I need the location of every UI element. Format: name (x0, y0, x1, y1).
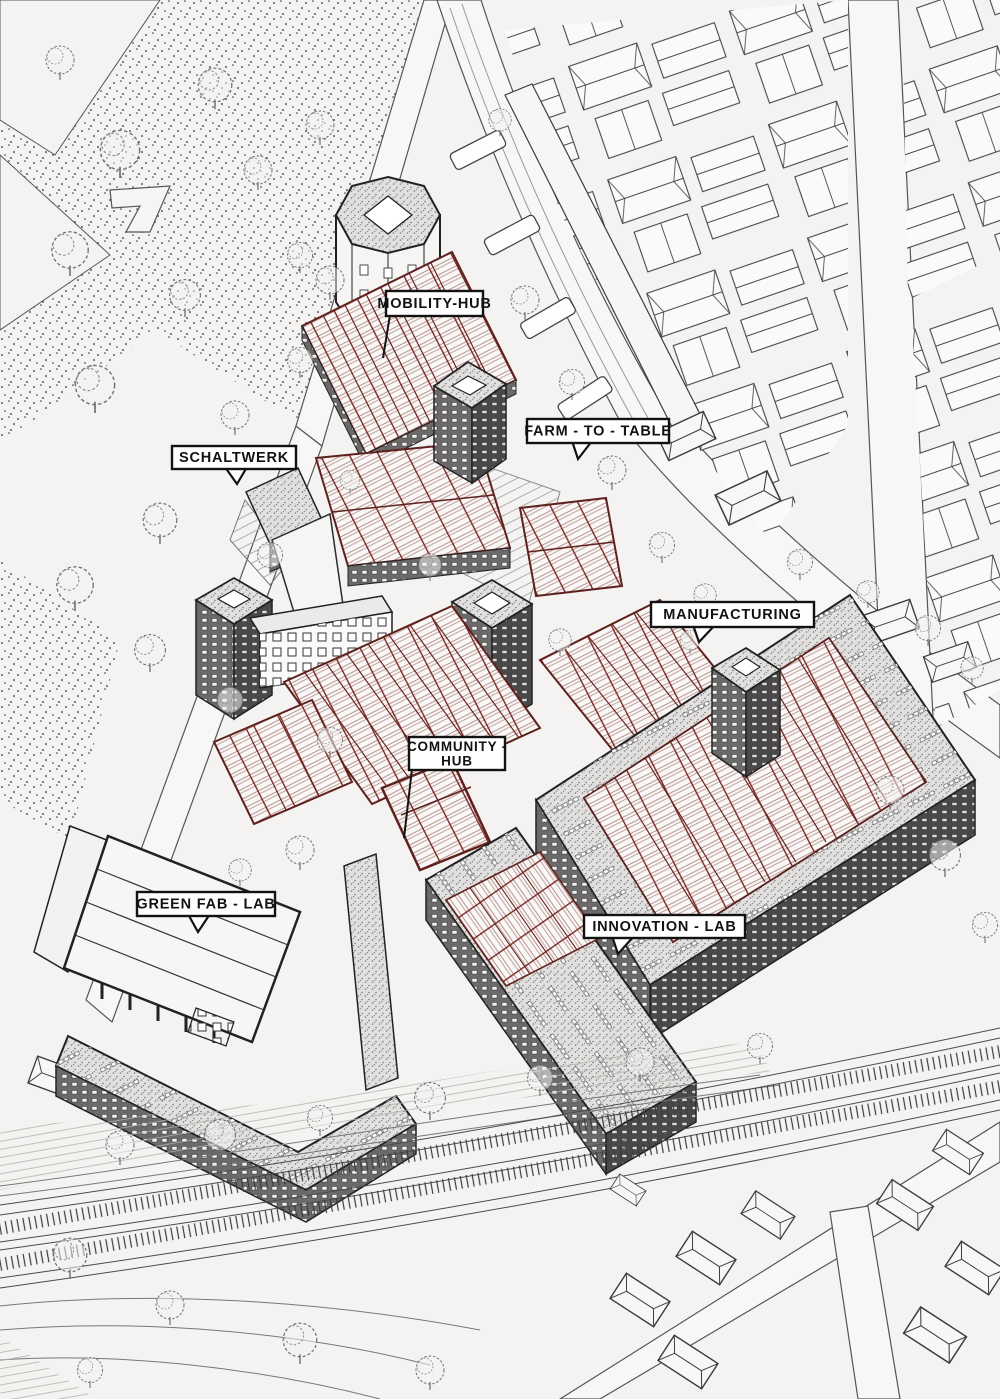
road-bottom-branch (830, 1206, 900, 1399)
masterplan-page: MOBILITY-HUB FARM - TO - TABLE SCHALTWER… (0, 0, 1000, 1399)
label-text-community-hub-line2: HUB (441, 754, 473, 769)
masterplan-drawing: MOBILITY-HUB FARM - TO - TABLE SCHALTWER… (0, 0, 1000, 1399)
label-text-green-fab-lab: GREEN FAB - LAB (136, 897, 275, 913)
label-text-mobility-hub: MOBILITY-HUB (377, 296, 491, 312)
building-green-fab-lab (34, 826, 300, 1046)
label-text-community-hub-line1: COMMUNITY - (407, 739, 507, 754)
label-text-schaltwerk: SCHALTWERK (179, 450, 289, 466)
label-text-farm-to-table: FARM - TO - TABLE (524, 424, 672, 440)
building-red-shed-small (520, 498, 622, 596)
label-text-manufacturing: MANUFACTURING (663, 607, 801, 623)
tower-4 (712, 648, 780, 777)
tower-1 (434, 362, 506, 483)
label-text-innovation-lab: INNOVATION - LAB (592, 919, 736, 935)
road-bottom-right (560, 1122, 1000, 1399)
building-thin-slab (344, 854, 398, 1090)
